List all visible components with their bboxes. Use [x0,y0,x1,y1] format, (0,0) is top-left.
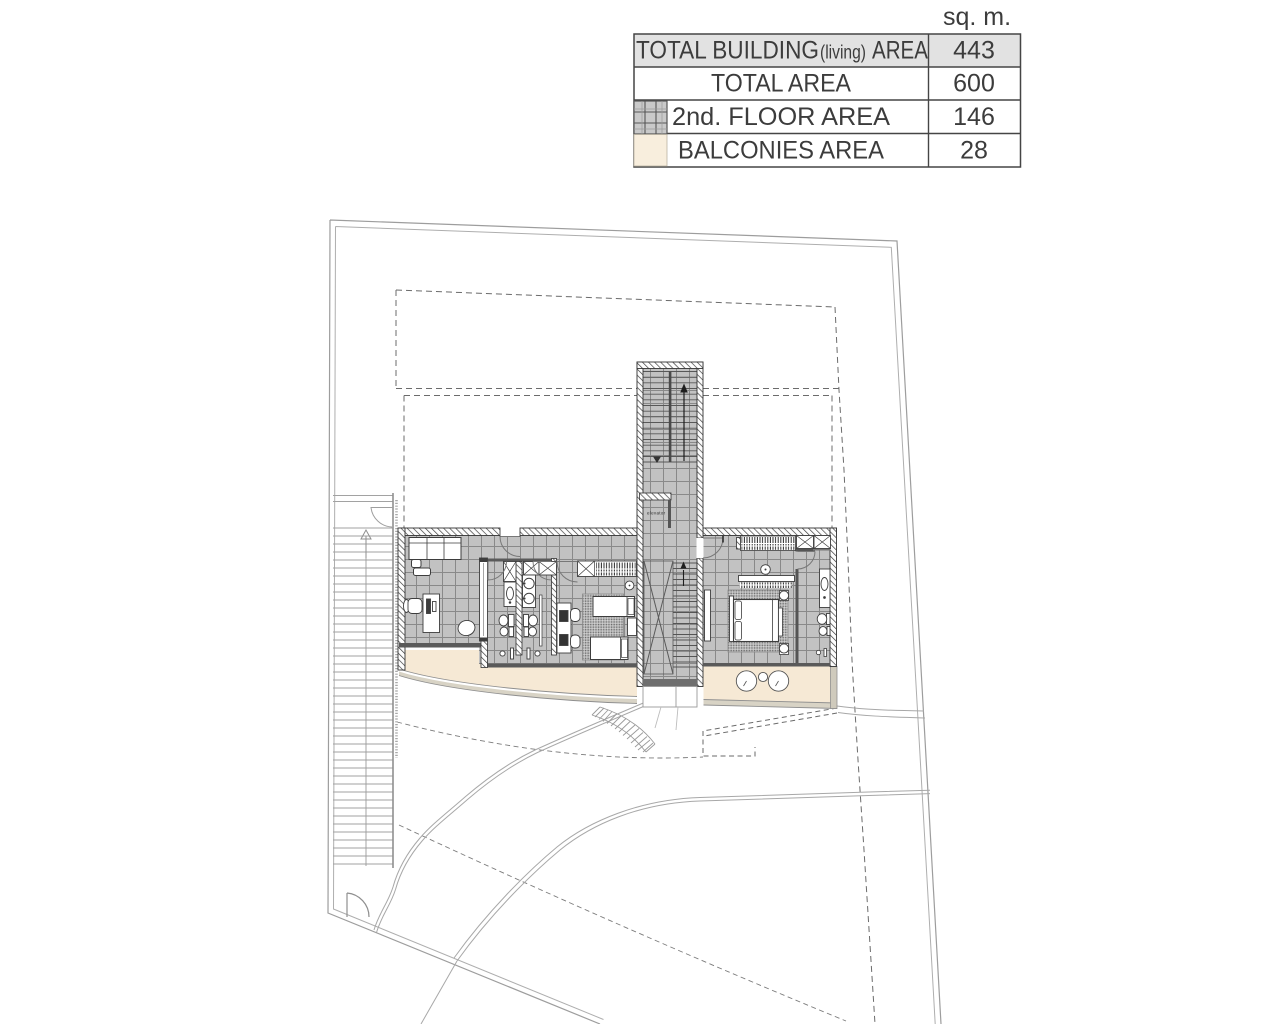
svg-text:TOTAL BUILDING: TOTAL BUILDING [636,37,819,65]
svg-text:(living): (living) [820,43,866,64]
svg-text:TOTAL AREA: TOTAL AREA [711,70,851,98]
svg-text:BALCONIES AREA: BALCONIES AREA [678,137,884,165]
svg-text:600: 600 [953,70,995,98]
svg-text:sq. m.: sq. m. [943,3,1011,31]
svg-text:elevator: elevator [647,511,666,516]
svg-text:146: 146 [953,103,995,131]
svg-text:443: 443 [953,37,995,65]
svg-text:28: 28 [960,137,988,165]
svg-text:AREA: AREA [872,37,928,65]
svg-text:2nd. FLOOR AREA: 2nd. FLOOR AREA [672,103,890,131]
